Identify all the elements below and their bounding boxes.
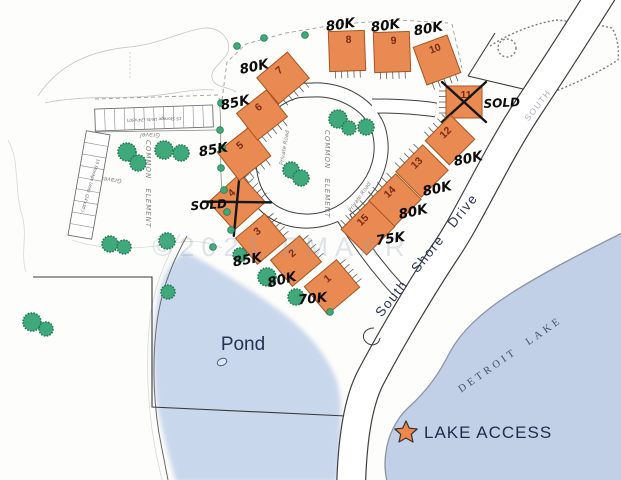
- site-plan-page: 15 Storage Units (24'x30')15 Storage Uni…: [0, 0, 621, 480]
- common-element-label-west: COMMON ELEMENT: [144, 140, 152, 228]
- tree-icon: [161, 285, 175, 299]
- shrub-icon: [218, 165, 225, 172]
- tree-icon: [117, 240, 131, 254]
- tree-icon: [130, 155, 146, 171]
- shrub-icon: [302, 32, 309, 39]
- driveway-hatch: [439, 91, 446, 113]
- storage-building-1: 15 Storage Units (24'x30'): [95, 105, 214, 131]
- lot-11: 11: [439, 82, 486, 122]
- lot-8: 8: [328, 30, 366, 78]
- tree-icon: [342, 121, 356, 135]
- shrub-icon: [261, 35, 268, 42]
- shrub-icon: [217, 127, 224, 134]
- tree-icon: [39, 322, 53, 336]
- tree-icon: [293, 170, 309, 186]
- tree-icon: [358, 119, 374, 135]
- lot-10: 10: [413, 35, 463, 91]
- lot-9: 9: [373, 31, 411, 79]
- lot-number: 9: [390, 35, 396, 47]
- tree-icon: [155, 141, 173, 159]
- tree-icon: [23, 313, 41, 331]
- price-label: 70K: [297, 289, 329, 308]
- lot-number: 8: [345, 34, 351, 46]
- private-road-label-west: Private Road: [279, 130, 291, 166]
- sold-label: SOLD: [483, 95, 520, 111]
- storage-layer: 15 Storage Units (24'x30')15 Storage Uni…: [68, 105, 213, 239]
- shrub-icon: [221, 187, 228, 194]
- lake-access-label: LAKE ACCESS: [424, 423, 552, 442]
- gravel-label-north: Gravel: [140, 131, 160, 138]
- tree-icon: [173, 145, 189, 161]
- gravel-label-west: Gravel: [101, 175, 122, 184]
- shrub-icon: [327, 309, 334, 316]
- pond-label: Pond: [221, 334, 265, 355]
- site-plan-map: 15 Storage Units (24'x30')15 Storage Uni…: [0, 0, 621, 480]
- common-element-label-center: COMMON ELEMENT: [323, 130, 331, 218]
- sold-label: SOLD: [190, 197, 227, 214]
- shrub-icon: [234, 43, 241, 50]
- watermark: ©2021 FMAAR: [153, 232, 412, 262]
- storage-building-2: 15 Storage Units (24'x30'): [68, 131, 110, 240]
- tree-icon: [102, 236, 118, 252]
